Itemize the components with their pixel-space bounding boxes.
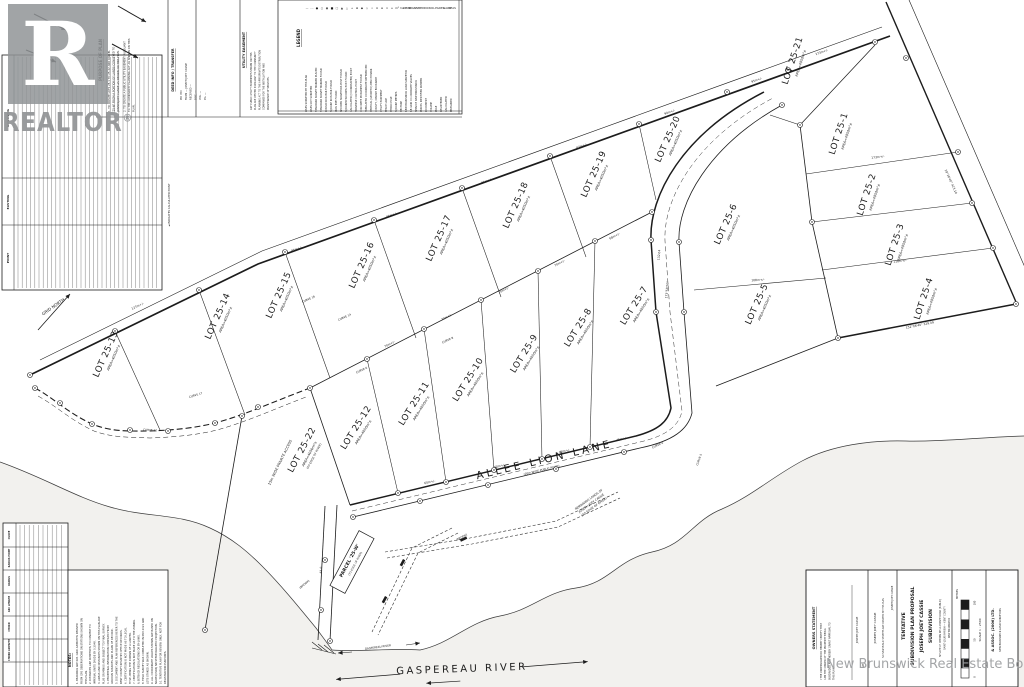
- note-line: 1. BEARINGS ARE N.B. GRID AZIMUTHS DERIV…: [75, 623, 79, 684]
- note-line: VARIOUS SOURCES AND PLANS OF RECORD.: [110, 628, 114, 684]
- legend-symbol-icon: ×: [386, 6, 388, 10]
- curve-label: CURVE 12: [143, 428, 157, 433]
- note-line: FROM GPS OBSERVATIONS ON STATIONS SHOWN …: [79, 618, 83, 684]
- legend-entry: VERTICAL (GEODETIC) BENCH MARK: [370, 68, 373, 112]
- lot-label: LOT 25-1AREA=4050m²±: [828, 111, 856, 157]
- dimension-label: 70m+/-: [498, 286, 510, 295]
- curve-table-header: RADIUS: [8, 576, 11, 586]
- legend-entry: UTILITY EASEMENT: [380, 89, 383, 112]
- lot-label: LOT 25-19AREA=4050m²±: [580, 150, 614, 202]
- dimension-label: 132.04: [657, 249, 662, 260]
- purpose-line: TO THE COMMUNITY PLANNING ACT AS SHOWN O…: [127, 38, 131, 112]
- lot-label: LOT 25-4AREA=4050m²±: [913, 276, 941, 322]
- purpose-line: 2. TO CREATE A PUBLIC UTILITY EASEMENT P…: [123, 41, 127, 112]
- scale-label: SCALE 1 : 2500: [978, 618, 982, 641]
- legend-symbol-icon: m²: [395, 6, 399, 10]
- legend-entry: SQUARE IRON BAR FOUND: [330, 80, 333, 112]
- note-line: 4. PERIPHERAL INFORMATION COMPILED FROM: [106, 625, 110, 684]
- note-line: THIS PLAN.: [84, 670, 88, 684]
- plan-location-line: SAINT-LOUIS PARISH — KENT COUNTY: [944, 606, 947, 650]
- legend-entry: WOODEN SURVEYORS POST FOUND: [340, 69, 343, 112]
- legend-symbol-icon: ■: [331, 6, 334, 10]
- dimension-label: 45m+/-: [616, 436, 628, 442]
- legend-entry: SQUARED WOODEN POST FOUND: [345, 72, 348, 112]
- legend-entry: TABULATED COORDINATE REFERENCED: [365, 64, 368, 112]
- note-line: 2. DISTANCES ARE IN METRES; TO CONVERT T…: [88, 624, 92, 684]
- lot-label: LOT 25-7AREA=4050m²±: [619, 285, 655, 330]
- deed-title: DEED INFO / TRANSFER: [171, 48, 175, 92]
- lot-label: LOT 25-13AREA=4050m²±: [92, 330, 126, 382]
- scalebar-units: METRES: [956, 589, 959, 599]
- registered-mark: ®: [123, 111, 134, 124]
- lot-label: LOT 25-11AREA=4050m²±: [397, 380, 436, 430]
- legend-symbol-icon: ⊕: [356, 6, 358, 10]
- surveyor-firm-sub: NEW BRUNSWICK LAND SURVEYORS: [999, 608, 1002, 652]
- plan-drawing: 100500 NORTHINGEASTINGPOINT◄ INDICATES C…: [0, 0, 1024, 687]
- purpose-line: '25-W' FROM A PORTION OF LANDS CONVEYED …: [111, 47, 115, 112]
- dimension-label: 85m+/-: [481, 177, 493, 185]
- legend-title: LEGEND: [296, 28, 301, 47]
- legend-symbol-icon: MEAS: [448, 6, 456, 10]
- deed-item: DOC. —: [193, 90, 197, 100]
- point-table-header: EASTING: [6, 194, 10, 209]
- lot-label: LOT 25-9AREA=4050m²±: [509, 333, 545, 378]
- legend-entry: PAGE: [435, 105, 438, 112]
- legend-entry: VOLUME: [430, 102, 433, 112]
- note-line: TITLE, BEING THE DOMAIN OF A LAWYER.: [128, 632, 132, 684]
- allee-lion-lane-label: ALLEE LION LANE(20m WIDE PUBLIC ROAD): [475, 438, 615, 487]
- lot-label: LOT 25-14AREA=4050m²±: [204, 292, 238, 344]
- lot-label: LOT 25-21AREA=4050m²±: [781, 36, 811, 88]
- legend-symbol-icon: - -: [311, 6, 314, 10]
- legend-entry: FENCE LINE: [385, 98, 388, 112]
- legend-entry: HYDRO POLE: [390, 96, 393, 112]
- utility-easement-line: MAINTENANCE OF SERVICES.: [267, 76, 270, 110]
- plan-location-line: SITUATE AT CHEMIN DE LA POINTE ROAD (PUB…: [939, 599, 942, 657]
- dimension-label: 173m+/-: [871, 154, 885, 160]
- dimension-label: 127m+/-: [131, 301, 145, 310]
- curve-table-header: CURVE: [8, 530, 11, 539]
- legend-entry: LINES NOT SURVEYED: [310, 86, 313, 112]
- note-line: REGISTRATION PURPOSES.: [163, 651, 167, 684]
- note-line: 6. CERTIFICATION IS NOT MADE AS TO LEGAL: [123, 627, 127, 684]
- notes-title: NOTES:: [68, 653, 72, 667]
- purpose-line: JOSEPH JOEY CASSIE AS SHOWN ON THIS PLAN…: [116, 50, 120, 113]
- remnant-lands-label: REMAINING LANDS OFJOSEPH JOEY CASSIE(TO …: [574, 488, 609, 518]
- owner-name-small: JOSEPH JOEY CASSIE: [891, 585, 894, 611]
- note-line: PLUS OR MINUS AND SUBJECT TO FINAL SURVE…: [101, 623, 105, 684]
- dimension-label: 61.0: [319, 566, 323, 573]
- lot-label: LOT 25-18AREA=4050m²±: [502, 181, 536, 233]
- note-line: 7. CERTIFICATION IS NOT MADE AS TO THE Z…: [132, 620, 136, 684]
- legend-entry: NB GRID CO-ORDINATE VALUES: [410, 74, 413, 112]
- stream-label: (BROOK): [298, 579, 310, 590]
- dimension-label: 70m+/-: [441, 313, 453, 322]
- note-line: KENT COUNTY REGISTRY OFFICE RECORDS.: [119, 629, 123, 684]
- legend-entry: COUNTY / PARISH BOUNDARY: [375, 76, 378, 112]
- legend-symbol-icon: —: [306, 6, 309, 10]
- statement-signature: JOSEPH JOEY CASSIE: [855, 616, 859, 644]
- parcel-label: PARCEL '25-W'(TO EDGE OF RIVER): [330, 531, 374, 594]
- legend-entry: CALCULATED (COORDINATED) POINT: [350, 67, 353, 112]
- legend-entry: STANDARD SURVEY MARKER PLACED: [315, 67, 318, 112]
- note-line: 9. ALL COORDINATE VALUES SHOWN ARE BASED…: [150, 618, 154, 684]
- lot-label: LOT 25-10AREA=4050m²±: [451, 356, 490, 406]
- plan-title-line: SUBDIVISION PLAN PROPOSAL: [910, 586, 916, 665]
- utility-easement-line: PLAN ARE VESTED PURSUANT TO THE COMMUNIT…: [254, 51, 257, 110]
- board-watermark-text: New Brunswick Real Estate Board: [826, 657, 1024, 672]
- legend-entry: ROUND IRON BAR FOUND: [325, 81, 328, 112]
- lot-label: LOT 25-16AREA=4050m²±: [348, 241, 382, 293]
- dimension-label: 118m+/-: [893, 258, 907, 264]
- point-table-header: POINT: [6, 252, 10, 263]
- plan-title-line: SUBDIVISION: [928, 609, 934, 643]
- note-line: & SETBACK REGULATIONS OR BY-LAWS.: [137, 634, 141, 684]
- note-line: 10. TENTATIVE PLAN FOR REVIEW ONLY, NOT …: [159, 622, 163, 684]
- lot-label: LOT 25-5AREA=4050m²±: [744, 282, 775, 328]
- legend-entry: LINES SURVEYED BY THIS PLAN: [305, 74, 308, 112]
- note-line: 8. FIELD SURVEY WAS COMPLETED IN MAY 202…: [141, 618, 145, 684]
- lot-label: LOT 25-22AREA=4050m²±(TO EDGE OF RIVER): [286, 426, 327, 479]
- lot-label: LOT 25-6AREA=4050m²±: [713, 202, 744, 248]
- road-name: ALLEE LION LANE: [475, 438, 614, 482]
- statement-title: OWNERS STATEMENT: [812, 606, 816, 649]
- legend-entry: SQUARE METRES: [395, 91, 398, 112]
- table-boxes: [2, 0, 1018, 687]
- statement-line: I THE UNDERSIGNED DO HEREBY CERTIFY THAT: [820, 623, 823, 680]
- owner-name: JOSEPH JOEY CASSIE: [873, 613, 877, 645]
- lot-label: LOT 25-12AREA=4050m²±: [339, 404, 378, 454]
- scale-tick: 100: [974, 600, 977, 605]
- curve-label: CURVE 17: [188, 391, 203, 399]
- dimension-label: 29°26'40" 423.10: [944, 169, 959, 195]
- deed-item: VOL. —: [198, 90, 202, 100]
- note-line: 5. DOCUMENT AND PLAN REFERENCES REFER TO…: [115, 616, 119, 684]
- stream-marks: [382, 536, 468, 603]
- curve-label: CURVE 4: [651, 441, 664, 450]
- legend-entry: STANDARD SURVEY MARKER FOUND: [320, 68, 323, 112]
- dimension-label: 85m+/-: [386, 211, 398, 219]
- note-line: 3. AREAS AND DISTANCES SHOWN ON THIS PLA…: [97, 616, 101, 684]
- dimension-label: 70m+/-: [554, 259, 566, 268]
- curve-table-header: ARC LENGTH: [8, 596, 11, 612]
- realtor-watermark-text: REALTOR®: [2, 108, 134, 138]
- scale-tick: 50: [974, 638, 977, 642]
- dimension-label: 108m+/-: [751, 278, 764, 283]
- subdivision-plan-canvas: 100500 NORTHINGEASTINGPOINT◄ INDICATES C…: [0, 0, 1024, 687]
- dimension-label: 87m+/-: [576, 142, 588, 150]
- utility-easement-line: PLANNING ACT TO THE APPROPRIATE DISTRIBU…: [258, 50, 261, 110]
- lot-label: LOT 25-2AREA=4050m²±: [856, 172, 884, 218]
- note-line: NAD83(CSRS) NB STEREOGRAPHIC PROJECTION.: [154, 623, 158, 684]
- legend-entry: PARCEL IDENTIFIER NUMBER: [420, 77, 423, 112]
- legend-entry: SERVICE NEW BRUNSWICK: [415, 80, 418, 112]
- owner-note: NO NEW PUBLIC STREETS ARE CREATED BY THI…: [882, 598, 885, 658]
- deed-item: PID 450: [179, 90, 183, 100]
- curve-label: CURVE 16: [301, 294, 316, 304]
- lot-label: LOT 25-8AREA=4050m²±: [563, 307, 599, 352]
- legend-entry: NEW BRUNSWICK LAND SURVEYOR: [405, 70, 408, 112]
- curve-label: CURVE 8: [441, 336, 454, 345]
- utility-easement-line: COMPANIES FOR THE INSTALLATION AND: [263, 63, 266, 110]
- deed-item: RECEIVED —: [189, 84, 193, 100]
- utility-easement-title: UTILITY EASEMENT: [242, 31, 246, 68]
- legend-symbol-icon: □: [336, 6, 339, 10]
- legend-entry: IRON PIPE FOUND: [335, 91, 338, 112]
- lot-label: LOT 25-17AREA=4050m²±: [425, 214, 459, 266]
- legend-entry: HECTARE: [400, 100, 403, 112]
- curve-table-header: CHORD AZIMUTH: [8, 639, 11, 661]
- realtor-logo-icon: R: [8, 4, 108, 104]
- note-line: LOTS STAKED AS SHOWN.: [145, 651, 149, 684]
- curve-label: CURVE 5: [695, 453, 703, 466]
- curve-label: CURVE 6: [355, 366, 368, 375]
- legend-entry: DOCUMENT: [425, 97, 428, 112]
- curve-label: CURVE 14: [337, 312, 352, 322]
- deed-item: PG. —: [203, 92, 207, 100]
- legend-entry: CALCULATED: [445, 96, 448, 112]
- point-table-note: ◄ INDICATES CALCULATED POINT: [167, 183, 171, 227]
- legend-entry: TRAVERSE CONTROL POINT: [355, 79, 358, 112]
- utility-easement-line: ANY PUBLIC UTILITY EASEMENTS SHOWN ON TH…: [250, 52, 253, 110]
- realtor-logo-letter: R: [21, 10, 94, 98]
- dimension-label: 95m+/-: [291, 245, 303, 253]
- curve-table-header: CHORD: [8, 622, 11, 631]
- statement-line: I AM THE OWNER OF THE PROPERTY BEING: [824, 628, 827, 680]
- plan-location-line: NEW BRUNSWICK: [948, 617, 951, 638]
- dimension-label: 173m+/-: [815, 48, 829, 56]
- plan-title-line: JOSEPH JOEY CASSIE: [919, 600, 925, 654]
- plan-title-line: TENTATIVE: [901, 612, 907, 640]
- surveyor-firm: & ASSOC. (2006) LTD.: [991, 608, 995, 652]
- note-line: IMPERIAL UNITS DIVIDE BY 0.3048.: [93, 640, 97, 684]
- legend-symbol-icon: ⌂: [391, 6, 393, 10]
- legend-entry: CONCRETE MONUMENT FOUND: [360, 74, 363, 112]
- deed-item: FROM — JOSEPH JOEY CASSIE: [184, 63, 188, 100]
- legend-entry: REGISTERED: [440, 97, 443, 112]
- legend-entry: MEASURED: [450, 98, 453, 112]
- lot-label: LOT 25-20AREA=4050m²±: [654, 115, 688, 167]
- curve-table-header: RADIUS POINT: [8, 548, 11, 567]
- lot-label: LOT 25-15AREA=4050m²±: [265, 271, 299, 323]
